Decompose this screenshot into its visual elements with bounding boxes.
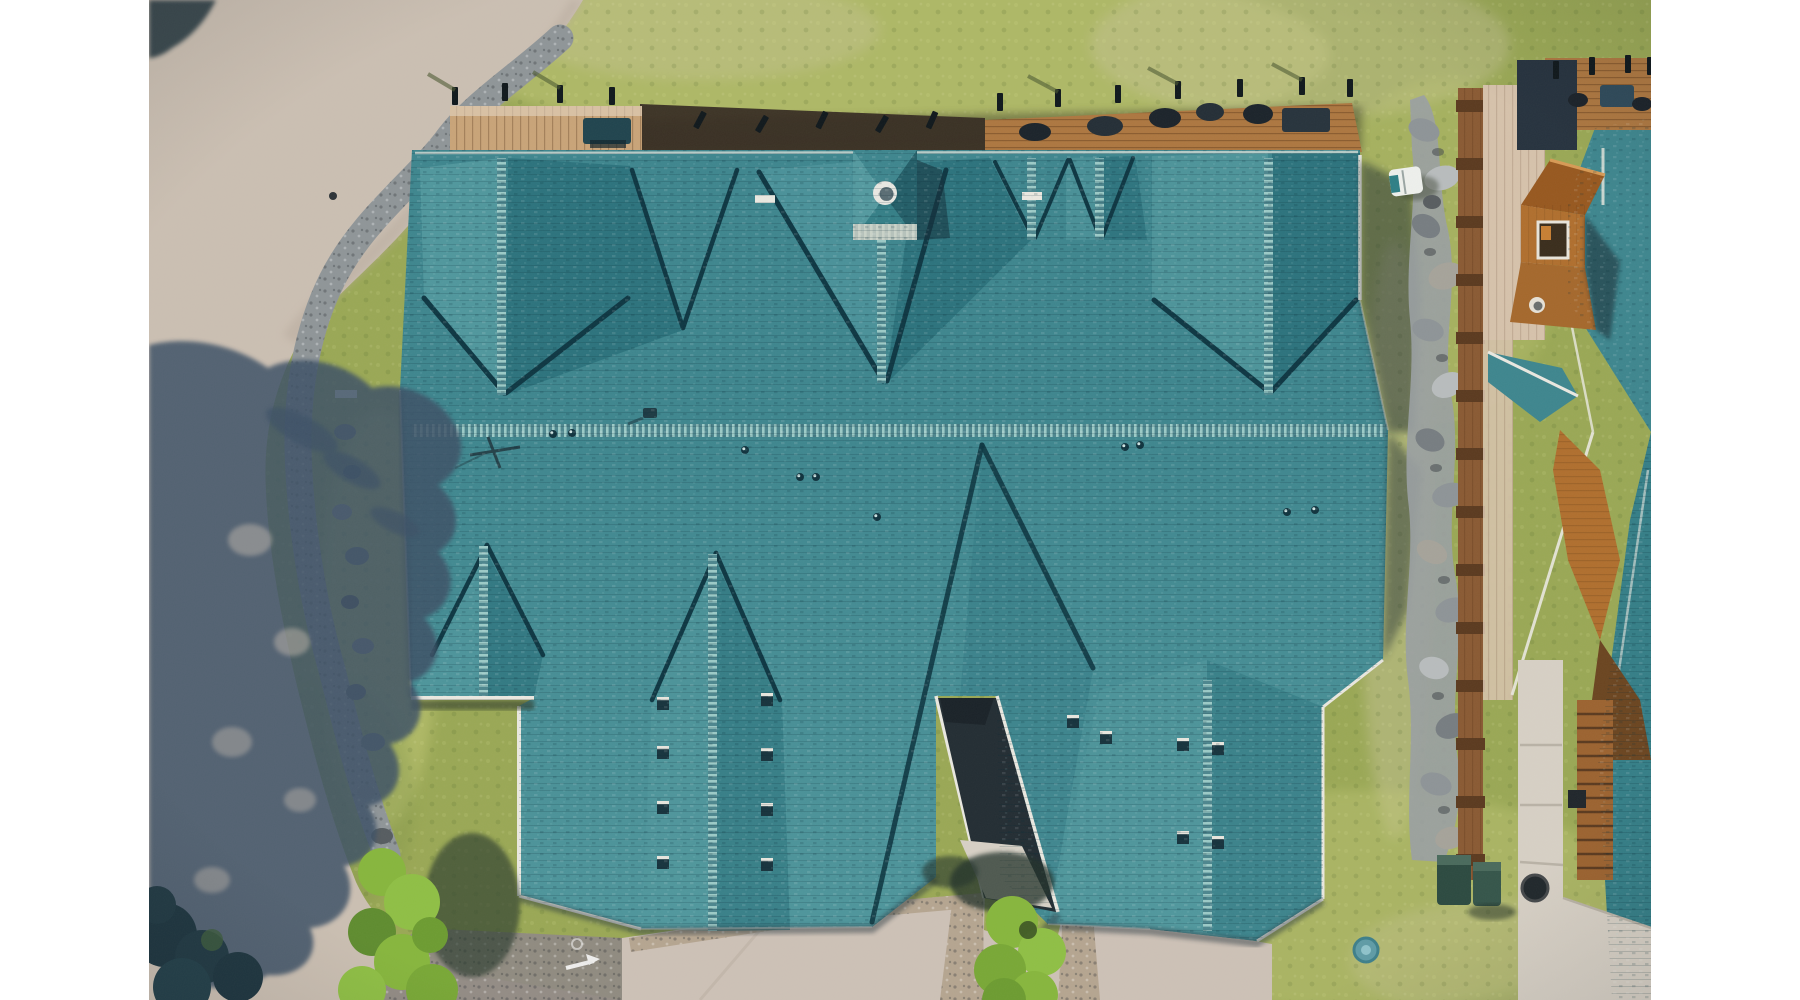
aerial-photo (133, 0, 1653, 1000)
screenshot-stage (0, 0, 1800, 1000)
photo-vignette (149, 0, 1651, 1000)
aerial-photo-canvas (0, 0, 1800, 1000)
